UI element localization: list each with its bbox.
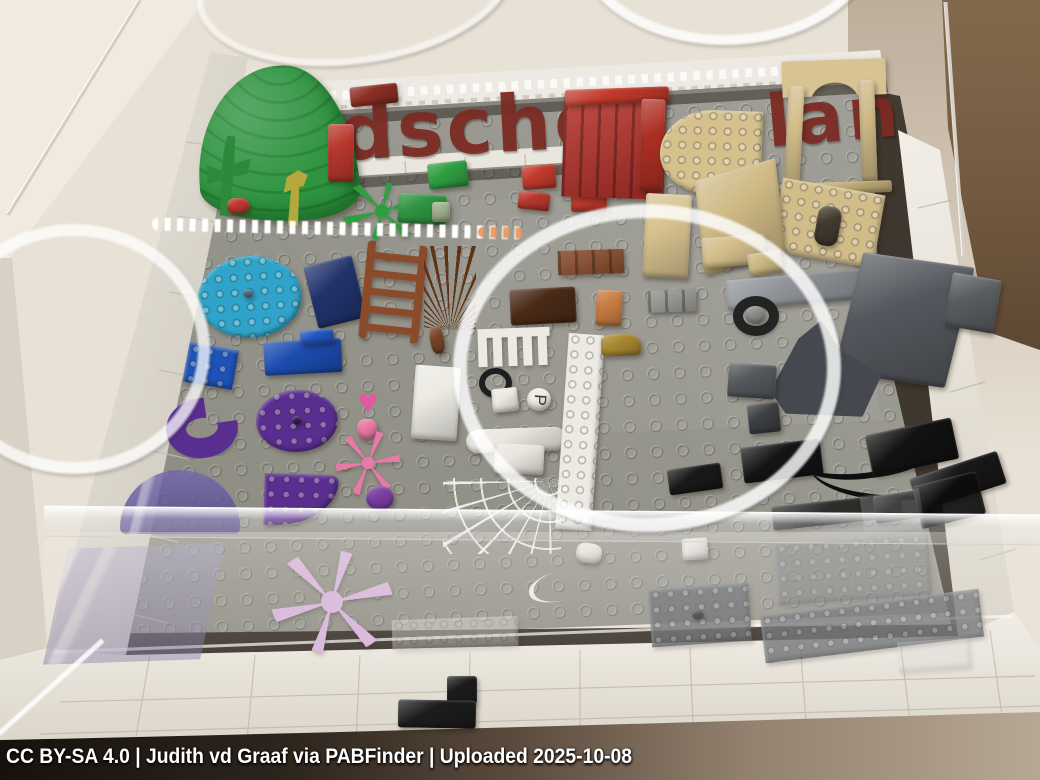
scene-background xyxy=(0,0,1040,780)
photo-caption: CC BY-SA 4.0 | Judith vd Graaf via PABFi… xyxy=(6,745,632,769)
lego-display-case-photo: dsche lan ♥P CC BY-SA 4.0 | Judith vd Gr… xyxy=(0,0,1040,780)
baseplate-sheen xyxy=(460,190,882,440)
